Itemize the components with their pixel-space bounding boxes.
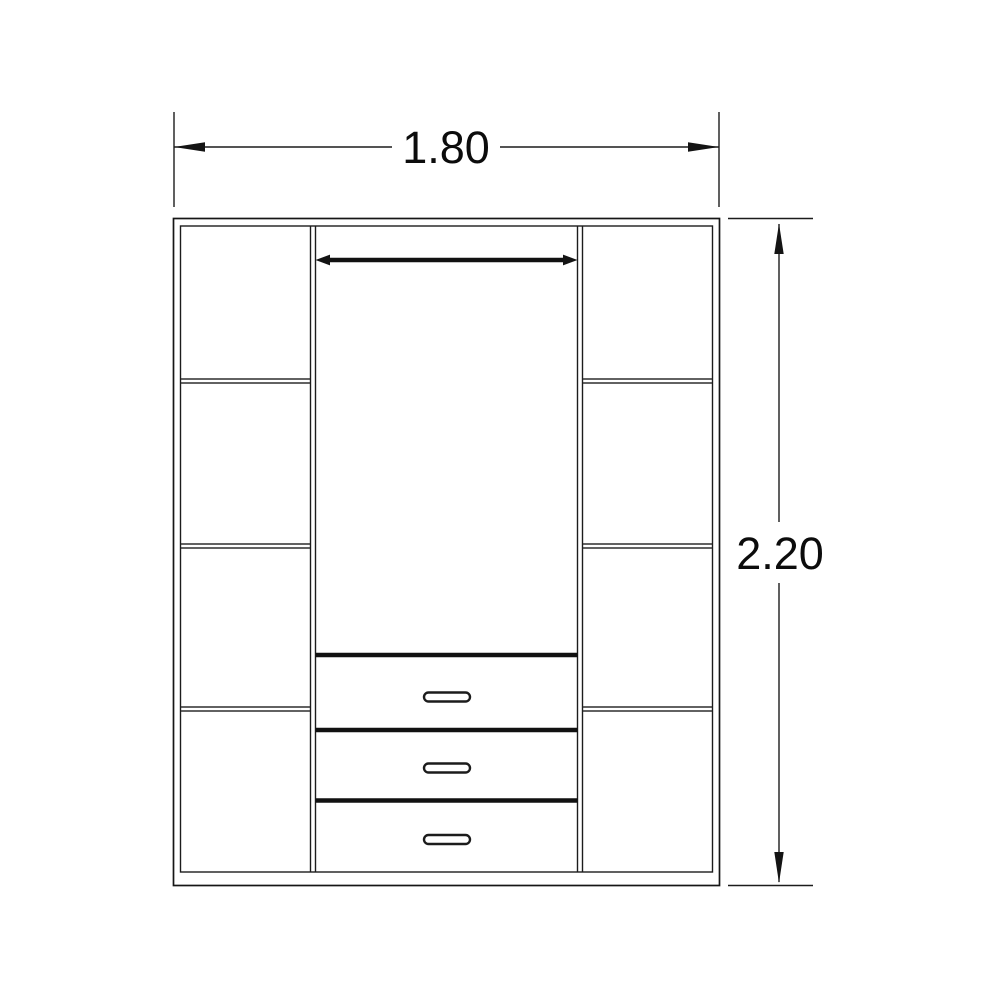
drawer-handle-2 <box>424 764 470 773</box>
wardrobe-carcass <box>174 219 720 886</box>
height-arrow-bottom <box>774 852 783 883</box>
drawer-handle-3 <box>424 835 470 844</box>
drawer-stack <box>316 655 578 844</box>
left-shelf-1 <box>181 379 310 383</box>
drawer-handle-1 <box>424 693 470 702</box>
carcass-inner-edge <box>181 226 713 872</box>
height-dimension: 2.20 <box>728 219 824 886</box>
left-shelf-2 <box>181 544 310 548</box>
drawing-canvas: 1.80 2.20 <box>0 0 1000 1000</box>
hanging-rail-end-right <box>563 255 578 266</box>
right-partition <box>578 226 583 872</box>
right-shelf-1 <box>583 379 712 383</box>
right-shelf-3 <box>583 707 712 711</box>
height-arrow-top <box>774 224 783 255</box>
wardrobe-technical-drawing: 1.80 2.20 <box>0 0 1000 1000</box>
hanging-rail-end-left <box>316 255 331 266</box>
left-shelf-3 <box>181 707 310 711</box>
carcass-outer-edge <box>174 219 720 886</box>
width-dimension-label: 1.80 <box>402 122 490 173</box>
hanging-rail <box>316 255 578 266</box>
width-arrow-right <box>688 142 719 151</box>
width-arrow-left <box>174 142 205 151</box>
width-dimension: 1.80 <box>174 112 719 207</box>
left-partition <box>311 226 316 872</box>
height-dimension-label: 2.20 <box>736 528 824 579</box>
right-shelf-2 <box>583 544 712 548</box>
